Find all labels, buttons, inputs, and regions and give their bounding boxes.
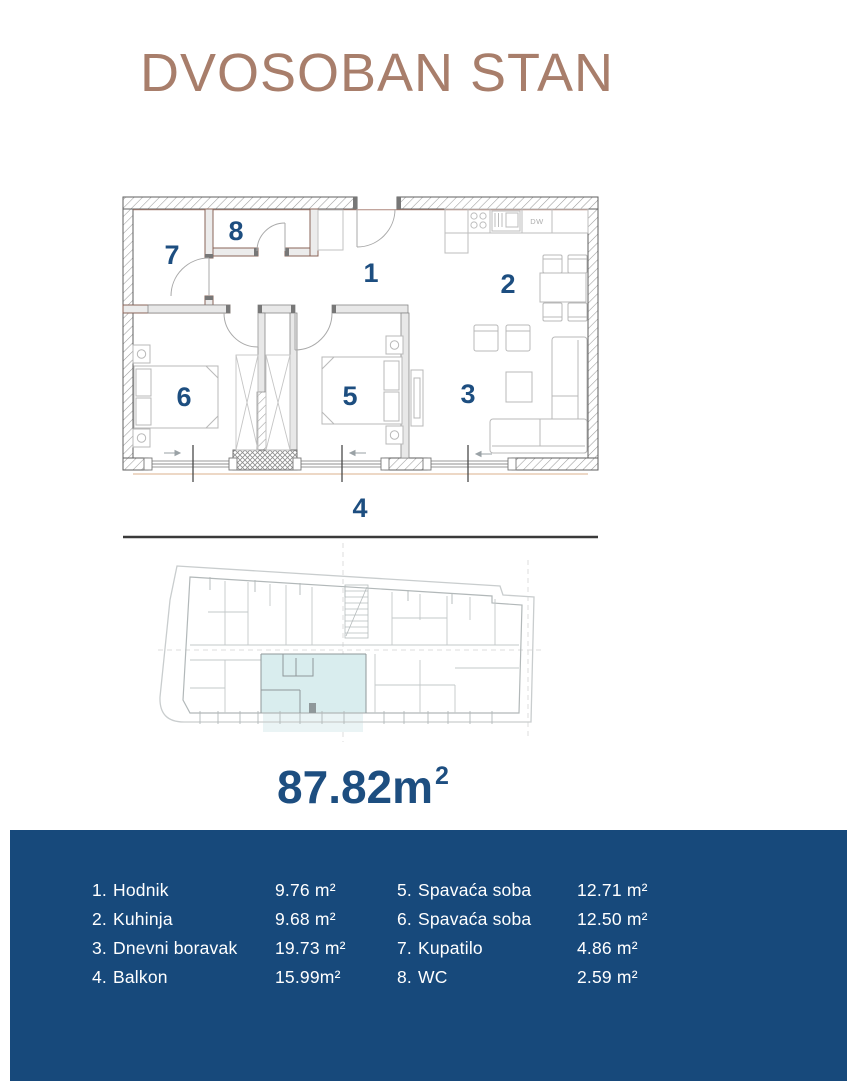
kitchen-counter [445,209,588,253]
room-number-wc: 8 [228,216,243,246]
legend-column-1: 1.Hodnik 9.76 m² 2.Kuhinja 9.68 m² 3.Dne… [92,876,392,992]
legend-item: 1.Hodnik 9.76 m² [92,876,392,905]
sink-icon [492,211,520,231]
room-number-spavaca-1: 5 [342,381,357,411]
hallway-closet [318,210,343,250]
legend-column-2: 5.Spavaća soba 12.71 m² 6.Spavaća soba 1… [397,876,727,992]
stove-icon [471,213,486,228]
room-number-kupatilo: 7 [164,240,179,270]
legend-item: 4.Balkon 15.99m² [92,963,392,992]
stairs-icon [345,585,368,638]
floor-plan-page: DVOSOBAN STAN [0,0,847,1081]
area-value: 87.82m [277,761,433,813]
legend-footer: 1.Hodnik 9.76 m² 2.Kuhinja 9.68 m² 3.Dne… [10,830,847,1081]
tv-dresser [411,370,423,426]
legend-item: 7.Kupatilo 4.86 m² [397,934,727,963]
dishwasher-label: DW [530,217,544,226]
legend-item: 8.WC 2.59 m² [397,963,727,992]
legend-item: 2.Kuhinja 9.68 m² [92,905,392,934]
dining-set [540,255,587,321]
room-number-dnevni-boravak: 3 [460,379,475,409]
room-number-hodnik: 1 [363,258,378,288]
legend-item: 5.Spavaća soba 12.71 m² [397,876,727,905]
area-sup: 2 [435,762,449,790]
room-number-kuhinja: 2 [500,269,515,299]
area-label: 87.82m2 [0,760,726,814]
building-overview [158,543,545,742]
room-number-balkon: 4 [352,493,367,523]
legend-item: 3.Dnevni boravak 19.73 m² [92,934,392,963]
living-room-furniture [411,325,587,453]
bedroom5-furniture [322,336,403,444]
legend-item: 6.Spavaća soba 12.50 m² [397,905,727,934]
room-number-spavaca-2: 6 [176,382,191,412]
